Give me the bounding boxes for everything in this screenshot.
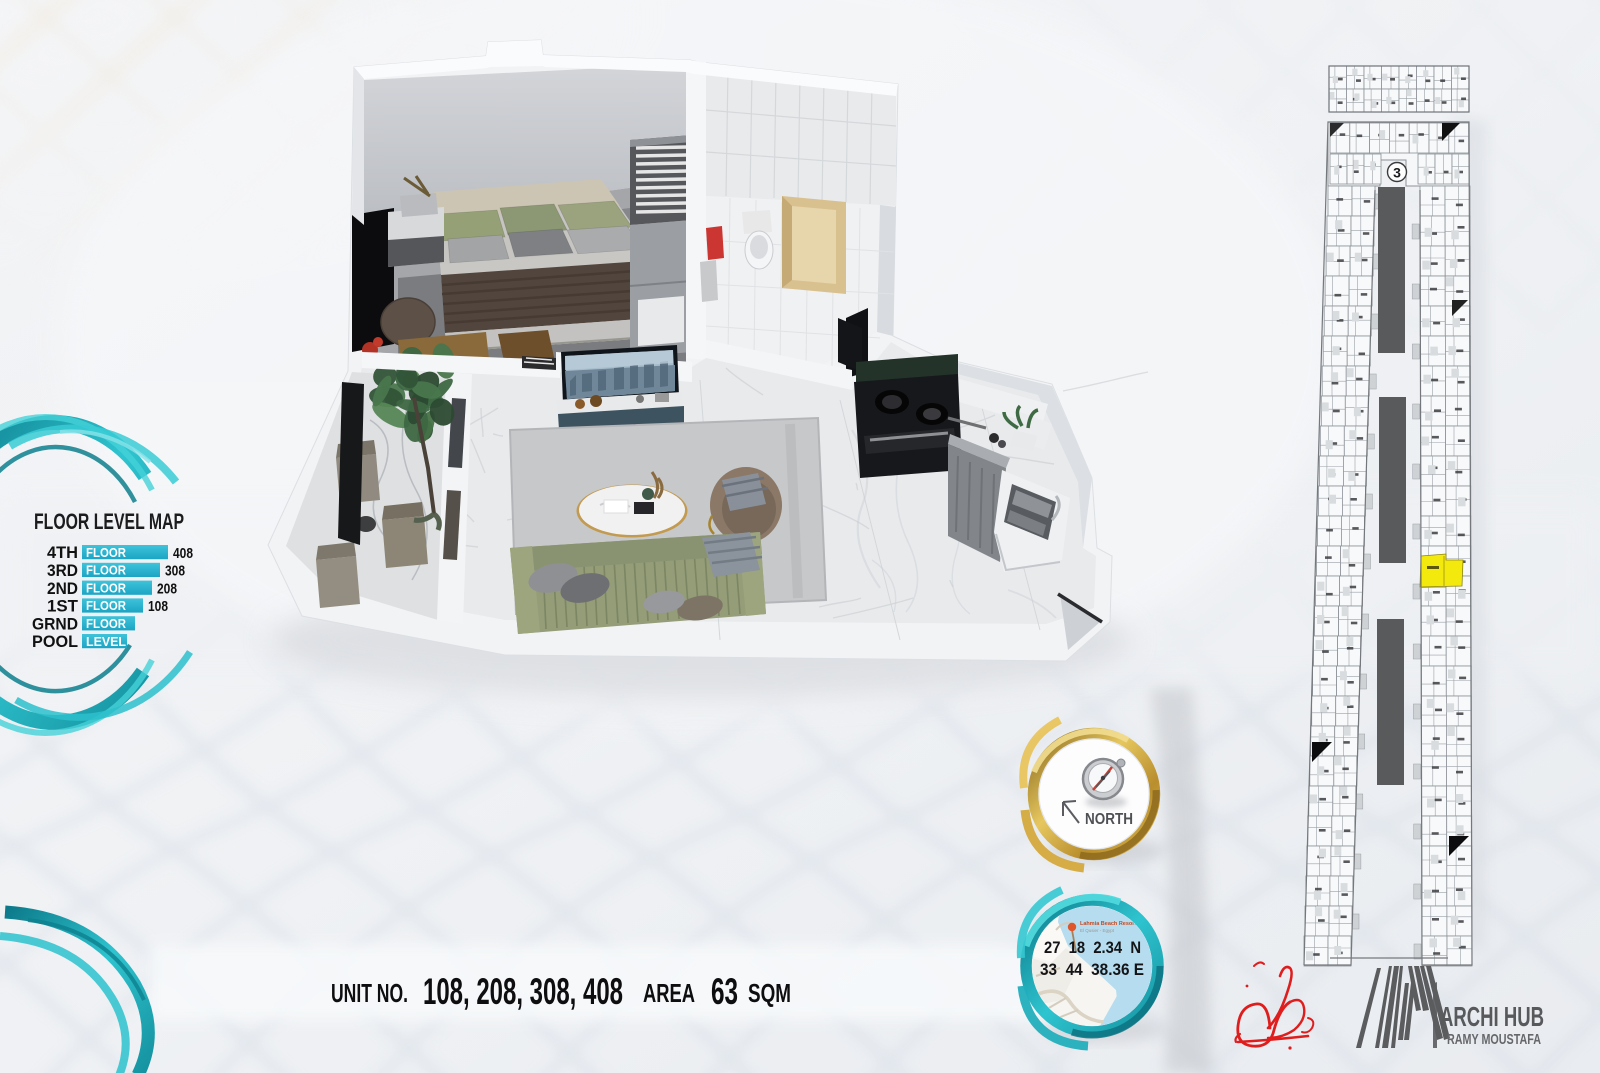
svg-text:Lahmia Beach Resort: Lahmia Beach Resort: [1080, 921, 1136, 927]
svg-text:27 18 2.34 N: 27 18 2.34 N: [1044, 938, 1141, 957]
svg-text:RAMY MOUSTAFA: RAMY MOUSTAFA: [1447, 1031, 1541, 1048]
svg-text:33 44 38.36 E: 33 44 38.36 E: [1040, 960, 1144, 979]
svg-text:El Qusier - Egypt: El Qusier - Egypt: [1080, 928, 1115, 933]
svg-text:208: 208: [157, 580, 177, 597]
svg-text:408: 408: [173, 545, 193, 562]
svg-text:FLOOR: FLOOR: [86, 599, 126, 613]
svg-text:FLOOR: FLOOR: [86, 617, 126, 631]
svg-text:ARCHI HUB: ARCHI HUB: [1440, 1001, 1544, 1032]
svg-text:108, 208, 308, 408: 108, 208, 308, 408: [423, 971, 623, 1012]
svg-text:FLOOR: FLOOR: [86, 564, 126, 578]
svg-text:LEVEL: LEVEL: [86, 635, 126, 649]
svg-text:4TH: 4TH: [47, 543, 78, 562]
svg-text:2ND: 2ND: [47, 579, 78, 598]
svg-text:3: 3: [1393, 165, 1401, 181]
svg-text:108: 108: [148, 598, 168, 615]
svg-text:POOL: POOL: [32, 632, 78, 651]
svg-text:3RD: 3RD: [47, 561, 78, 580]
svg-text:308: 308: [165, 563, 185, 580]
svg-text:UNIT NO.: UNIT NO.: [331, 978, 408, 1008]
svg-text:FLOOR: FLOOR: [86, 546, 126, 560]
svg-text:NORTH: NORTH: [1085, 811, 1133, 828]
svg-text:SQM: SQM: [748, 978, 791, 1008]
svg-text:FLOOR: FLOOR: [86, 581, 126, 595]
svg-text:1ST: 1ST: [47, 597, 79, 616]
svg-text:GRND: GRND: [32, 614, 78, 633]
svg-text:FLOOR LEVEL MAP: FLOOR LEVEL MAP: [34, 509, 184, 534]
svg-text:63: 63: [711, 971, 738, 1012]
svg-text:AREA: AREA: [643, 978, 695, 1008]
